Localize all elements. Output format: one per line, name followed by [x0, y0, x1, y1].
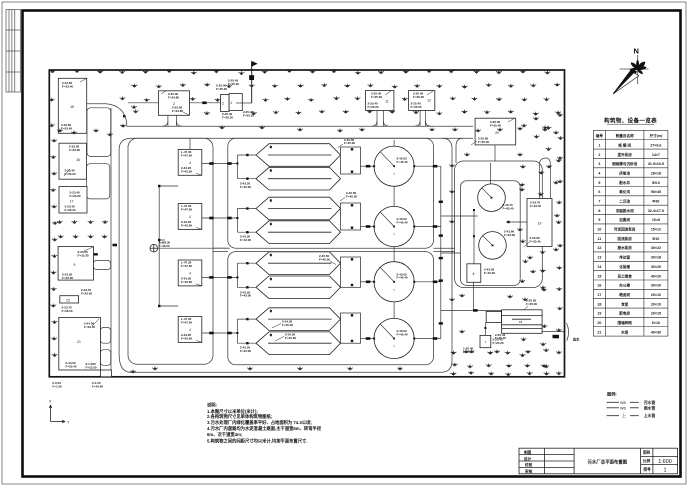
svg-text:5.构筑物之间的间距尺寸均以米计,均按平面布置尺寸.: 5.构筑物之间的间距尺寸均以米计,均按平面布置尺寸.: [207, 437, 308, 444]
svg-text:2: 2: [222, 102, 224, 106]
svg-text:F=45.40: F=45.40: [397, 220, 408, 224]
svg-text:F=45.40: F=45.40: [397, 332, 408, 336]
svg-text:F=24.80: F=24.80: [168, 95, 179, 99]
svg-text:20×10: 20×10: [651, 302, 661, 306]
svg-text:配电房: 配电房: [619, 311, 630, 316]
svg-text:18: 18: [519, 320, 523, 324]
svg-text:15: 15: [597, 274, 601, 278]
svg-text:15: 15: [70, 105, 74, 109]
svg-text:17: 17: [597, 293, 601, 297]
svg-text:N: N: [634, 47, 639, 56]
svg-text:F=43.40: F=43.40: [503, 206, 514, 210]
svg-text:传达室: 传达室: [618, 255, 630, 260]
svg-text:30×20: 30×20: [651, 265, 661, 269]
svg-text:10: 10: [597, 228, 601, 232]
svg-text:F=47.00: F=47.00: [181, 153, 192, 157]
svg-text:水塔: 水塔: [620, 329, 629, 334]
svg-text:F=25.20: F=25.20: [371, 95, 382, 99]
svg-text:F=25.20: F=25.20: [411, 105, 422, 109]
svg-text:回流泵房: 回流泵房: [618, 236, 633, 241]
svg-text:F=23.20: F=23.20: [65, 172, 76, 176]
svg-text:10×8: 10×8: [652, 218, 660, 222]
svg-text:9: 9: [74, 263, 76, 267]
svg-text:F=47.00: F=47.00: [181, 321, 192, 325]
svg-text:F=1.50: F=1.50: [52, 384, 62, 388]
svg-text:F=25.40: F=25.40: [530, 239, 541, 243]
svg-text:制图: 制图: [524, 449, 532, 454]
svg-text:F=43.00: F=43.00: [181, 280, 192, 284]
svg-text:16: 16: [597, 284, 601, 288]
svg-text:图别: 图别: [643, 449, 651, 454]
svg-text:13: 13: [427, 99, 431, 103]
svg-text:F=43.00: F=43.00: [181, 223, 192, 227]
svg-text:19: 19: [597, 312, 601, 316]
svg-text:4: 4: [189, 215, 191, 219]
svg-text:F=23.30: F=23.30: [78, 253, 89, 257]
svg-text:30×18: 30×18: [651, 256, 661, 260]
svg-text:23: 23: [66, 299, 70, 303]
svg-text:W5: W5: [620, 401, 626, 405]
svg-text:F=23.30: F=23.30: [62, 276, 73, 280]
svg-text:6: 6: [598, 190, 600, 194]
svg-text:6: 6: [473, 272, 475, 276]
svg-text:4: 4: [189, 161, 191, 165]
svg-text:浓缩脱水间: 浓缩脱水间: [616, 208, 634, 213]
svg-text:Φ30: Φ30: [652, 200, 659, 204]
svg-text:雨水管: 雨水管: [644, 405, 656, 410]
svg-text:F=25.20: F=25.20: [222, 115, 233, 119]
svg-text:F=45.40: F=45.40: [397, 276, 408, 280]
svg-text:16: 16: [76, 158, 80, 162]
svg-text:化验楼: 化验楼: [619, 264, 630, 269]
svg-text:F=43.20: F=43.20: [484, 271, 495, 275]
svg-text:F=43.40: F=43.40: [530, 204, 541, 208]
svg-text:图号: 图号: [644, 467, 652, 472]
svg-text:98×45: 98×45: [651, 190, 661, 194]
svg-text:18: 18: [597, 302, 601, 306]
svg-text:F=23.40: F=23.40: [66, 364, 77, 368]
svg-text:F=23.50: F=23.50: [81, 291, 92, 295]
svg-text:F=23.20: F=23.20: [65, 208, 76, 212]
svg-text:F=43.00: F=43.00: [240, 185, 251, 189]
svg-text:F=43.30: F=43.30: [504, 233, 515, 237]
svg-text:30×20: 30×20: [651, 284, 661, 288]
svg-text:构筑物、设备一览表: 构筑物、设备一览表: [604, 117, 657, 125]
svg-text:尺寸(m): 尺寸(m): [649, 133, 664, 138]
svg-text:加氯间: 加氯间: [618, 217, 630, 222]
svg-text:上: 上: [622, 413, 626, 418]
svg-text:11: 11: [597, 237, 601, 241]
svg-text:14×7: 14×7: [652, 153, 660, 157]
svg-text:12: 12: [597, 246, 601, 250]
svg-text:F=45.40: F=45.40: [397, 160, 408, 164]
svg-text:28×18: 28×18: [651, 172, 661, 176]
svg-text:20×10: 20×10: [651, 293, 661, 297]
svg-text:F=25.30: F=25.30: [526, 302, 537, 306]
svg-text:晒泥间: 晒泥间: [619, 292, 630, 297]
svg-text:5: 5: [598, 181, 600, 185]
svg-text:二沉池: 二沉池: [619, 199, 630, 204]
svg-text:15×12: 15×12: [651, 228, 661, 232]
svg-text:出水: 出水: [573, 337, 580, 342]
svg-text:F=45.30: F=45.30: [285, 336, 296, 340]
svg-text:4: 4: [189, 272, 191, 276]
svg-text:W6: W6: [620, 406, 626, 410]
svg-text:污泥回流泵房: 污泥回流泵房: [614, 227, 636, 232]
svg-text:F=23.20: F=23.20: [69, 148, 80, 152]
svg-text:说明:: 说明:: [207, 402, 218, 409]
svg-text:上水管: 上水管: [644, 413, 656, 418]
svg-text:11: 11: [385, 100, 389, 104]
svg-text:F=23.50: F=23.50: [62, 309, 73, 313]
svg-text:40×30: 40×30: [651, 330, 661, 334]
svg-text:F=45.30: F=45.30: [346, 195, 357, 199]
svg-text:食堂: 食堂: [621, 301, 629, 306]
svg-text:F=25.20: F=25.20: [493, 341, 504, 345]
svg-text:F=23.50: F=23.50: [86, 365, 97, 369]
svg-text:细格栅与沉砂池: 细格栅与沉砂池: [611, 161, 638, 166]
svg-text:图例:: 图例:: [607, 391, 617, 398]
svg-text:20: 20: [495, 131, 499, 135]
svg-text:F=23.40: F=23.40: [62, 84, 73, 88]
svg-text:F=47.00: F=47.00: [181, 264, 192, 268]
svg-text:Φ10: Φ10: [652, 237, 659, 241]
svg-text:30×22: 30×22: [651, 246, 661, 250]
svg-text:F=25.40: F=25.40: [478, 140, 489, 144]
svg-text:F=44.00: F=44.00: [92, 384, 103, 388]
svg-text:19: 19: [538, 222, 542, 226]
svg-text:2.各构筑物尺寸见单体构筑物图纸;: 2.各构筑物尺寸见单体构筑物图纸;: [207, 413, 273, 420]
svg-text:污水管: 污水管: [644, 400, 656, 405]
svg-text:F=45.30: F=45.30: [282, 323, 293, 327]
svg-text:员工宿舍: 员工宿舍: [618, 273, 633, 278]
svg-text:40×20: 40×20: [651, 274, 661, 278]
svg-text:6m、次干道宽4m;: 6m、次干道宽4m;: [207, 431, 243, 438]
svg-text:3.污水处理厂内绿化覆盖率平好、占地面积为 74.3公顷;: 3.污水处理厂内绿化覆盖率平好、占地面积为 74.3公顷;: [207, 419, 312, 426]
svg-text:F=43.00: F=43.00: [181, 169, 192, 173]
svg-text:1: 1: [664, 467, 667, 473]
svg-text:围墙砖砌: 围墙砖砌: [618, 320, 633, 325]
svg-text:9: 9: [598, 218, 600, 222]
svg-text:提升泵房: 提升泵房: [618, 152, 633, 157]
svg-text:F=43.00: F=43.00: [240, 349, 251, 353]
svg-text:1:600: 1:600: [658, 459, 672, 465]
svg-text:厌氧池: 厌氧池: [619, 171, 630, 176]
svg-text:F=45.30: F=45.30: [319, 258, 330, 262]
svg-text:F=23.20: F=23.20: [70, 194, 81, 198]
svg-text:4: 4: [598, 172, 600, 176]
svg-text:6×16: 6×16: [652, 321, 660, 325]
svg-text:2: 2: [598, 153, 600, 157]
svg-text:F=25.20: F=25.20: [413, 95, 424, 99]
svg-text:比例: 比例: [643, 458, 651, 463]
svg-text:20×15: 20×15: [651, 312, 661, 316]
svg-text:3: 3: [598, 162, 600, 166]
svg-text:20: 20: [597, 321, 601, 325]
svg-text:F=47.00: F=47.00: [181, 208, 192, 212]
svg-text:校核: 校核: [525, 462, 533, 467]
svg-text:4: 4: [189, 328, 191, 332]
svg-text:F=25.40: F=25.40: [490, 123, 501, 127]
svg-text:F=43.00: F=43.00: [240, 238, 251, 242]
svg-text:17: 17: [70, 200, 74, 204]
svg-text:F=43.00: F=43.00: [240, 294, 251, 298]
svg-text:F=43.00: F=43.00: [159, 244, 170, 248]
svg-text:格 栅 间: 格 栅 间: [617, 142, 631, 147]
svg-text:污水厂总平面布置图: 污水厂总平面布置图: [588, 458, 628, 465]
svg-text:F=25.20: F=25.20: [495, 336, 506, 340]
svg-text:办公楼: 办公楼: [618, 283, 630, 288]
svg-text:F=25.20: F=25.20: [228, 82, 239, 86]
svg-text:F=24.80: F=24.80: [172, 109, 183, 113]
svg-text:Φ3.0: Φ3.0: [652, 181, 660, 185]
svg-text:1: 1: [598, 143, 600, 147]
svg-text:氧化沟: 氧化沟: [618, 189, 630, 194]
svg-text:F=25.20: F=25.20: [216, 87, 227, 91]
svg-text:F=43.00: F=43.00: [181, 336, 192, 340]
svg-text:审核: 审核: [525, 469, 533, 474]
svg-text:F=25.20: F=25.20: [368, 105, 379, 109]
svg-text:14: 14: [597, 265, 601, 269]
svg-text:设计: 设计: [524, 456, 532, 461]
svg-text:废水泵房: 废水泵房: [618, 245, 633, 250]
svg-text:1: 1: [230, 101, 232, 105]
svg-text:21: 21: [597, 330, 601, 334]
svg-text:13: 13: [597, 256, 601, 260]
svg-text:31.5×16.5: 31.5×16.5: [648, 162, 664, 166]
svg-text:F=45.30: F=45.30: [344, 141, 355, 145]
svg-text:7: 7: [598, 200, 600, 204]
svg-text:配水井: 配水井: [619, 180, 630, 185]
svg-text:32.4×17.5: 32.4×17.5: [648, 209, 664, 213]
svg-text:F=23.40: F=23.40: [84, 325, 95, 329]
svg-text:27×6.6: 27×6.6: [650, 143, 661, 147]
svg-text:编号: 编号: [596, 133, 604, 138]
svg-text:数量及名称: 数量及名称: [615, 133, 634, 138]
svg-text:8: 8: [598, 209, 600, 213]
svg-text:4.污水厂内道路均为水泥混凝土路面,主干道宽6m、转弯半径: 4.污水厂内道路均为水泥混凝土路面,主干道宽6m、转弯半径: [207, 425, 322, 432]
svg-text:21: 21: [77, 340, 81, 344]
